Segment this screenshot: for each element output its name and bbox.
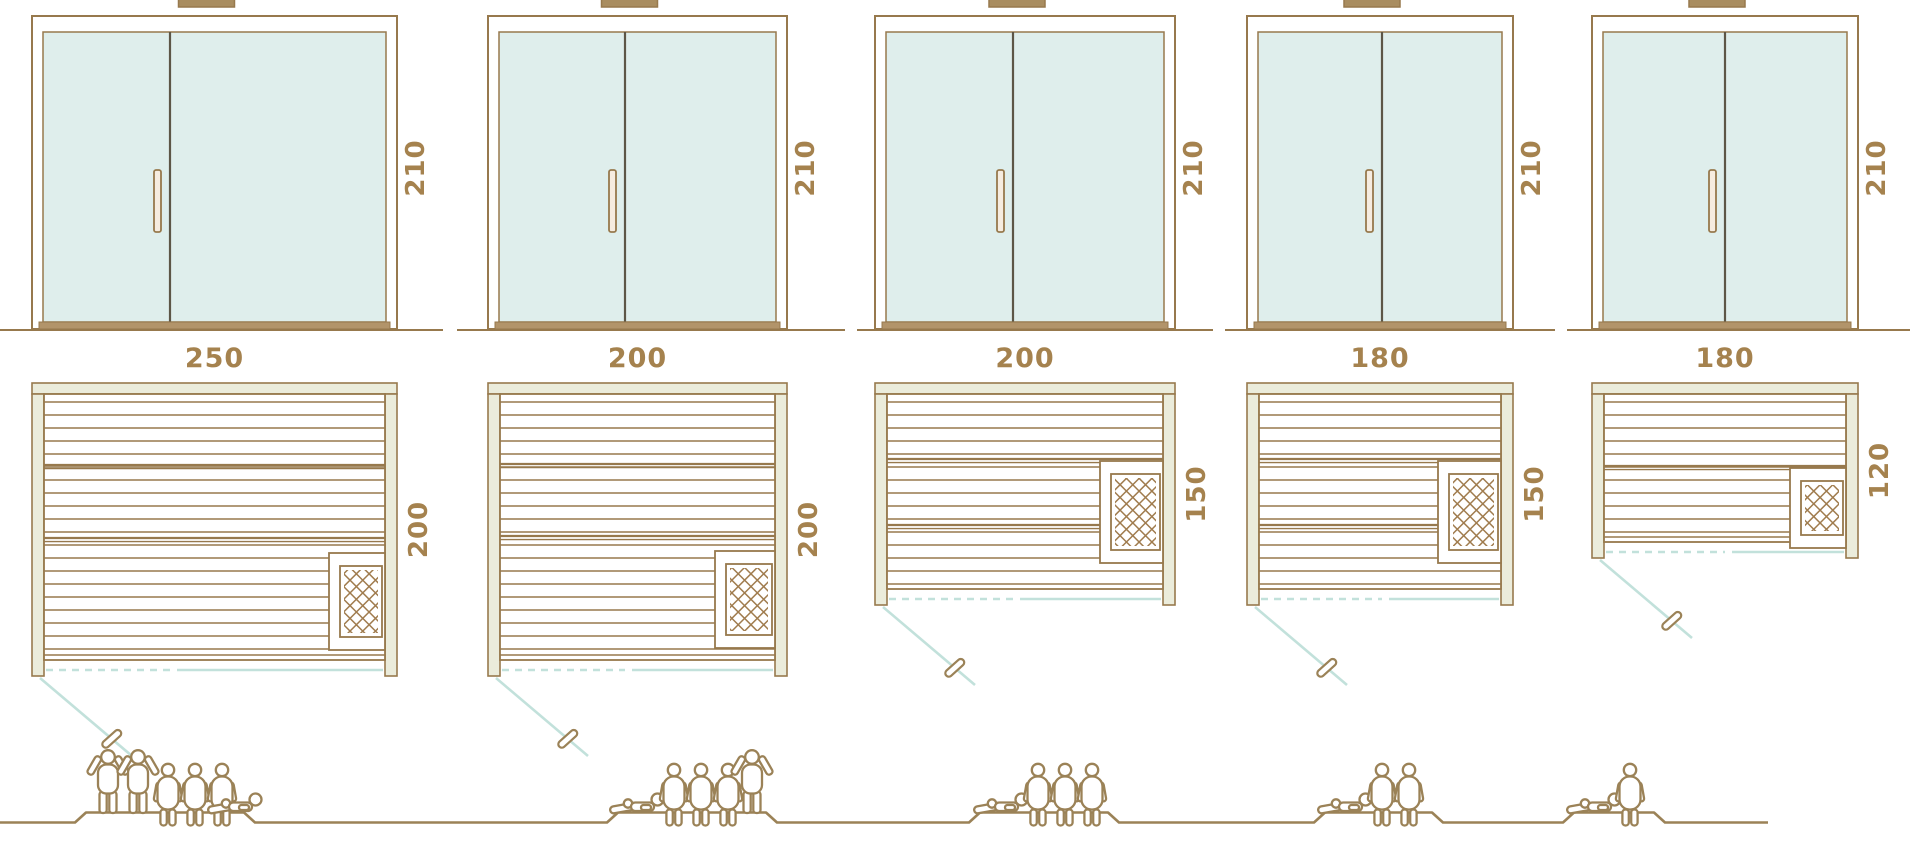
plan-wall-top — [1247, 383, 1513, 394]
door-glass — [1258, 32, 1502, 322]
plan-wall-top — [488, 383, 787, 394]
people-ground-line — [0, 813, 1768, 823]
plan-wall-right — [1501, 394, 1513, 605]
plan-wall-left — [32, 394, 44, 676]
capacity-group-sauna-180x120 — [1567, 764, 1645, 826]
chimney-stub — [989, 0, 1045, 7]
door-elevation-sauna-200x200: 210 — [457, 0, 845, 330]
width-label: 250 — [185, 343, 244, 374]
sauna-size-diagram: 2102502002102002002102001502101801502101… — [0, 0, 1920, 856]
unit-sauna-180x150: 210180150 — [1225, 0, 1555, 826]
width-label: 180 — [1350, 343, 1409, 374]
chimney-stub — [1689, 0, 1745, 7]
door-elevation-sauna-180x120: 210 — [1567, 0, 1910, 330]
floor-plan-sauna-180x150: 150 — [1247, 383, 1550, 685]
door-glass — [886, 32, 1164, 322]
door-handle — [1709, 170, 1716, 232]
person-seated-icon — [1023, 764, 1052, 826]
width-label: 200 — [995, 343, 1054, 374]
heater-lattice — [1115, 478, 1156, 546]
person-lying-icon — [1318, 794, 1372, 814]
depth-label: 150 — [1520, 465, 1550, 522]
heater-lattice — [1805, 485, 1839, 531]
door-swing-line — [496, 678, 588, 756]
capacity-group-sauna-200x200 — [610, 750, 774, 825]
person-seated-icon — [180, 764, 209, 826]
capacity-group-sauna-200x150 — [974, 764, 1107, 826]
unit-sauna-180x120: 210180120 — [1567, 0, 1910, 826]
floor-plan-sauna-200x200: 200 — [488, 383, 824, 756]
person-lying-icon — [1567, 794, 1621, 814]
unit-sauna-200x150: 210200150 — [857, 0, 1213, 826]
door-threshold — [495, 322, 780, 329]
width-label: 200 — [608, 343, 667, 374]
height-label: 210 — [791, 139, 821, 196]
door-glass — [43, 32, 386, 322]
heater-lattice — [730, 568, 768, 631]
plan-wall-left — [1247, 394, 1259, 605]
door-swing-line — [1600, 560, 1692, 638]
floor-plan-sauna-180x120: 120 — [1592, 383, 1895, 638]
person-lying-icon — [610, 794, 664, 814]
chimney-stub — [179, 0, 235, 7]
plan-wall-right — [385, 394, 397, 676]
floor-plan-sauna-250x200: 200 — [32, 383, 434, 756]
door-handle — [1366, 170, 1373, 232]
person-lying-icon — [974, 794, 1028, 814]
depth-label: 200 — [794, 501, 824, 558]
floor-plan-sauna-200x150: 150 — [875, 383, 1212, 685]
plan-wall-top — [32, 383, 397, 394]
plan-wall-left — [875, 394, 887, 605]
plan-wall-right — [775, 394, 787, 676]
depth-label: 120 — [1865, 442, 1895, 499]
width-label: 180 — [1695, 343, 1754, 374]
person-seated-icon — [1367, 764, 1396, 826]
unit-sauna-200x200: 210200200 — [457, 0, 845, 826]
person-seated-icon — [659, 764, 688, 826]
door-swing-line — [40, 678, 132, 756]
door-threshold — [1254, 322, 1506, 329]
unit-sauna-250x200: 210250200 — [0, 0, 443, 826]
heater-lattice — [344, 570, 378, 633]
door-elevation-sauna-180x150: 210 — [1225, 0, 1555, 330]
capacity-group-sauna-250x200 — [86, 750, 261, 825]
person-seated-icon — [207, 764, 236, 826]
door-swing-line — [1255, 607, 1347, 685]
person-seated-icon — [1050, 764, 1079, 826]
chimney-stub — [1344, 0, 1400, 7]
door-swing-line — [883, 607, 975, 685]
person-seated-icon — [1077, 764, 1106, 826]
plan-wall-top — [1592, 383, 1858, 394]
person-standing-icon — [116, 750, 159, 813]
height-label: 210 — [1862, 139, 1892, 196]
door-elevation-sauna-200x150: 210 — [857, 0, 1213, 330]
capacity-group-sauna-180x150 — [1318, 764, 1424, 826]
person-seated-icon — [1615, 764, 1644, 826]
plan-wall-left — [488, 394, 500, 676]
heater-lattice — [1453, 478, 1494, 546]
height-label: 210 — [1517, 139, 1547, 196]
height-label: 210 — [401, 139, 431, 196]
chimney-stub — [602, 0, 658, 7]
diagram-canvas: 2102502002102002002102001502101801502101… — [0, 0, 1920, 856]
door-glass — [499, 32, 776, 322]
door-threshold — [39, 322, 390, 329]
depth-label: 150 — [1182, 465, 1212, 522]
plan-wall-top — [875, 383, 1175, 394]
door-handle — [997, 170, 1004, 232]
plan-wall-right — [1163, 394, 1175, 605]
plan-wall-left — [1592, 394, 1604, 558]
person-seated-icon — [1394, 764, 1423, 826]
door-handle — [609, 170, 616, 232]
door-threshold — [1599, 322, 1851, 329]
height-label: 210 — [1179, 139, 1209, 196]
depth-label: 200 — [404, 501, 434, 558]
door-handle — [154, 170, 161, 232]
door-elevation-sauna-250x200: 210 — [0, 0, 443, 330]
door-threshold — [882, 322, 1168, 329]
plan-wall-right — [1846, 394, 1858, 558]
person-seated-icon — [686, 764, 715, 826]
